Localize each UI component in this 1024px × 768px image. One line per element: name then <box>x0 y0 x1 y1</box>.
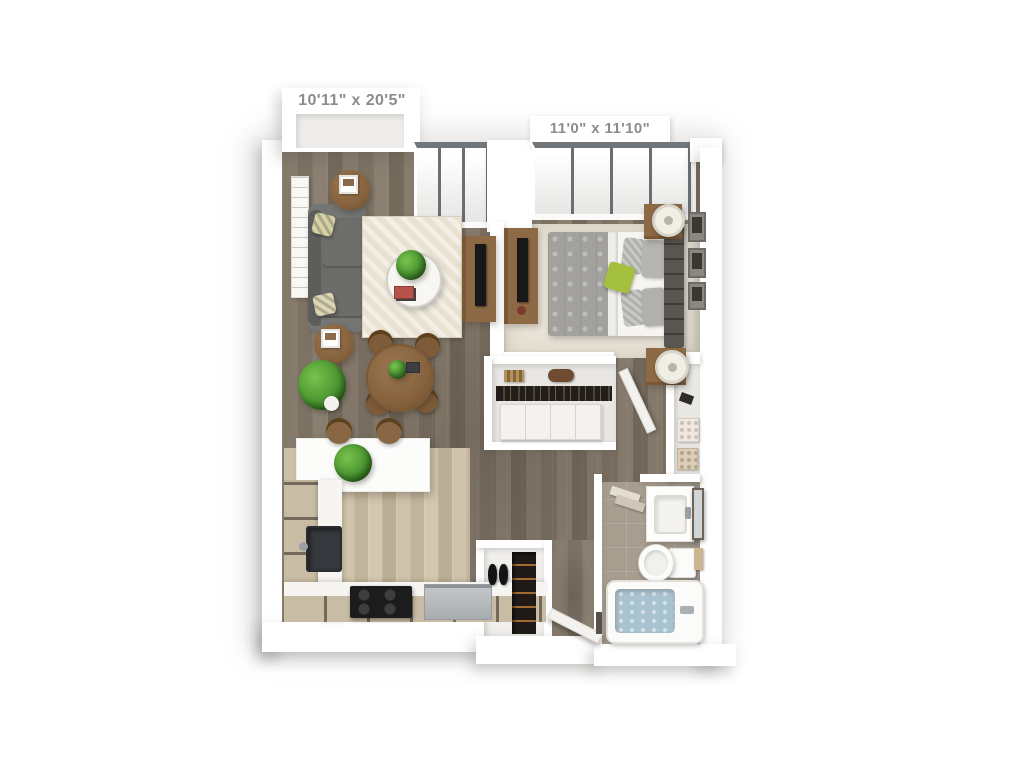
closet-south-wall <box>484 442 616 450</box>
tv-console-living <box>462 236 496 322</box>
sink-faucet <box>685 507 691 519</box>
closet-hanging-clothes <box>496 386 612 401</box>
bottom-wall-entry <box>476 636 602 664</box>
frame-photo <box>343 179 354 186</box>
closet-north-wall <box>484 356 616 364</box>
bathroom-north-wall <box>640 474 700 482</box>
bottom-wall-bathroom <box>594 644 736 666</box>
bathtub-water <box>615 589 675 633</box>
shoe <box>499 564 508 585</box>
floor-plan-scene: 10'11" x 20'5" 11'0" x 11'10" <box>0 0 1024 768</box>
kitchen-counter-bottom <box>284 582 546 596</box>
shoe-rack <box>512 552 536 634</box>
left-exterior-wall <box>262 140 282 652</box>
bar-stool <box>326 418 352 444</box>
linen-basket <box>677 418 699 442</box>
bathtub <box>606 580 704 644</box>
dining-table-tablet <box>406 362 420 373</box>
closet-shelf-basket <box>504 370 524 382</box>
bed-duvet <box>548 232 610 336</box>
bar-herb-plant <box>334 444 372 482</box>
wall-frame <box>688 282 706 310</box>
table-picture-frame <box>339 175 358 194</box>
kitchen-cabinet-bottom <box>284 596 546 622</box>
wall-art <box>291 176 309 298</box>
bar-stool <box>376 418 402 444</box>
tub-faucet <box>680 606 694 614</box>
wall-frame <box>688 248 706 278</box>
entry-closet-north-wall <box>476 540 552 548</box>
bottom-wall-kitchen <box>262 622 484 652</box>
coffee-table-books <box>394 286 414 299</box>
table-lamp <box>655 350 689 384</box>
linen-basket <box>677 448 698 470</box>
top-left-alcove <box>296 114 404 148</box>
vanity <box>646 486 694 542</box>
headboard <box>664 224 684 348</box>
frame-art <box>692 253 702 269</box>
frame-photo <box>325 333 336 340</box>
entry-door-frame <box>596 612 602 634</box>
shoe <box>488 564 497 585</box>
decor-bowl <box>517 306 526 315</box>
coffee-table-plant <box>396 250 426 280</box>
sink-basin <box>654 495 687 534</box>
tv-screen <box>475 244 486 306</box>
lamp-finial <box>668 363 677 372</box>
table-picture-frame <box>321 329 340 348</box>
closet-west-wall <box>484 356 492 450</box>
kitchen-faucet <box>299 542 308 551</box>
bed <box>548 232 672 336</box>
bedroom-dimensions-label: 11'0" x 11'10" <box>532 120 668 137</box>
throw-pillow <box>312 292 337 317</box>
wall-frame <box>688 212 706 242</box>
closet-drawer-unit <box>500 404 602 440</box>
cooktop <box>350 586 412 618</box>
kitchen-sink <box>306 526 342 572</box>
window-partition-column <box>487 140 532 232</box>
frame-art <box>692 217 702 233</box>
tv-console-bedroom <box>504 228 538 324</box>
tv-screen <box>517 238 528 302</box>
toilet-seat <box>644 550 668 576</box>
dishwasher <box>424 584 492 620</box>
closet-rolled-blanket <box>548 369 574 382</box>
dining-table-plant <box>388 360 407 379</box>
toilet-bowl <box>638 544 674 582</box>
frame-art <box>692 287 702 301</box>
vanity-mirror <box>692 488 704 540</box>
living-room-dimensions-label: 10'11" x 20'5" <box>284 92 420 110</box>
hand-towel <box>694 548 703 570</box>
table-lamp <box>652 204 685 237</box>
lamp-finial <box>664 216 673 225</box>
floor-plant-pot <box>324 396 339 411</box>
mirror-glass <box>694 490 702 538</box>
